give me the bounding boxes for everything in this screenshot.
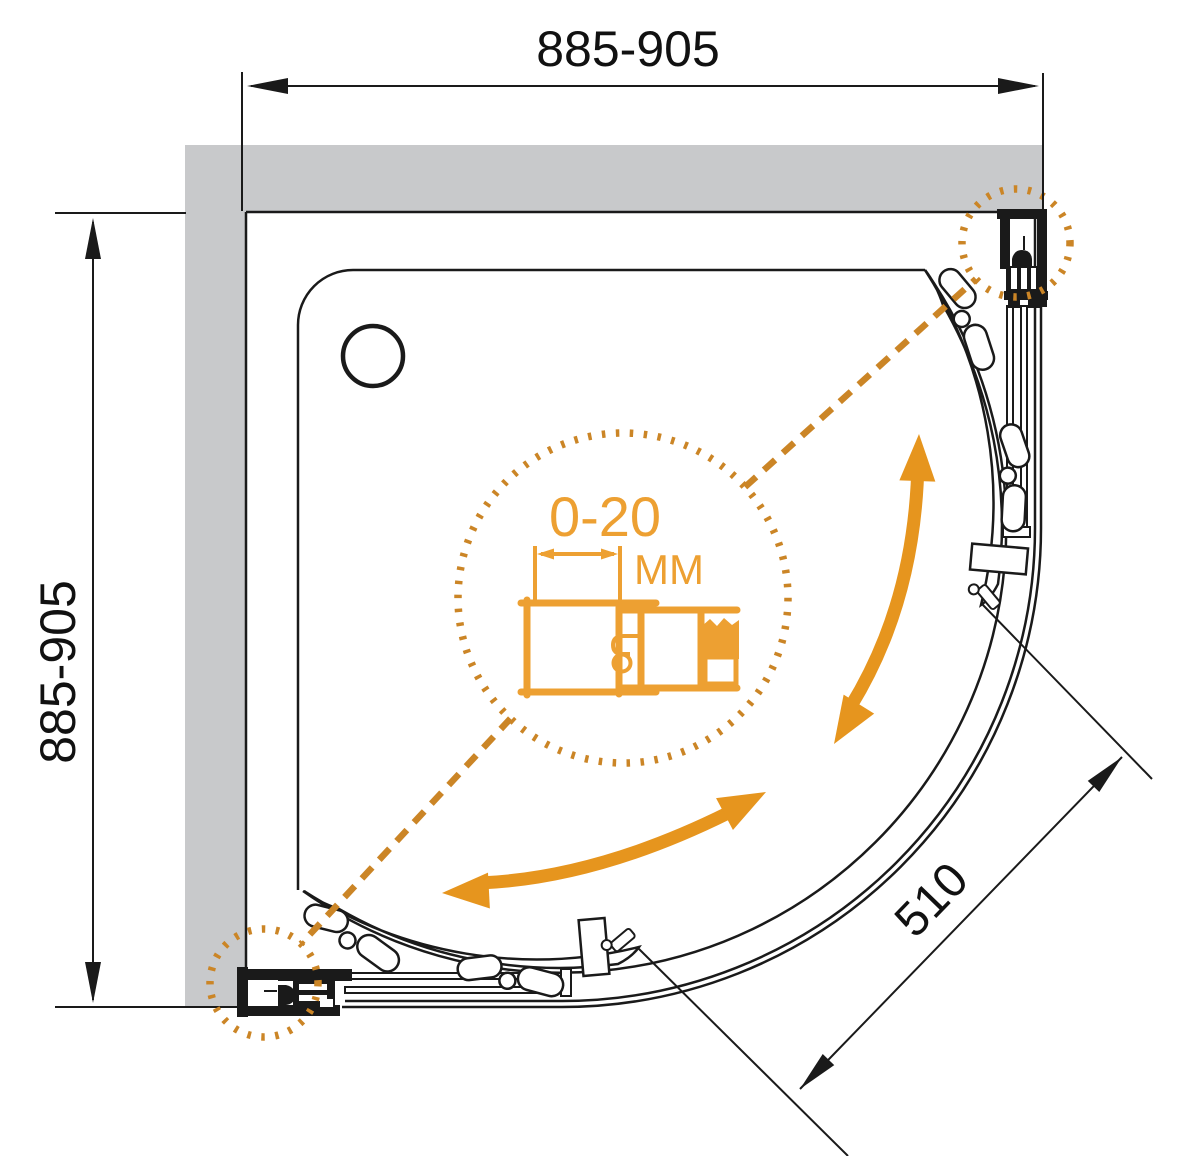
wall-profile-bracket-bottom-left	[237, 967, 352, 1017]
dimension-left-label: 885-905	[30, 580, 86, 764]
adjustment-unit-label: MM	[634, 546, 704, 593]
detail-leader-bottom-left	[301, 718, 511, 944]
door-swing-arrow-bottom	[441, 776, 774, 911]
dimension-left: 885-905	[30, 213, 186, 1007]
wall-left	[185, 145, 246, 1007]
door-handle-right	[970, 544, 1028, 575]
door-swing-arrow-right	[819, 433, 937, 753]
adjustment-range-label: 0-20	[549, 485, 661, 548]
detail-leader-top-right	[745, 279, 976, 487]
technical-drawing-canvas: 0-20 MM 885-905 885-905 510	[0, 0, 1181, 1156]
drain-icon	[343, 326, 403, 386]
adjustment-detail-inset: 0-20 MM	[458, 433, 788, 763]
wall-top	[185, 145, 1043, 212]
wall-profile-bracket-top-right	[997, 209, 1048, 308]
dimension-top-label: 885-905	[536, 21, 720, 77]
